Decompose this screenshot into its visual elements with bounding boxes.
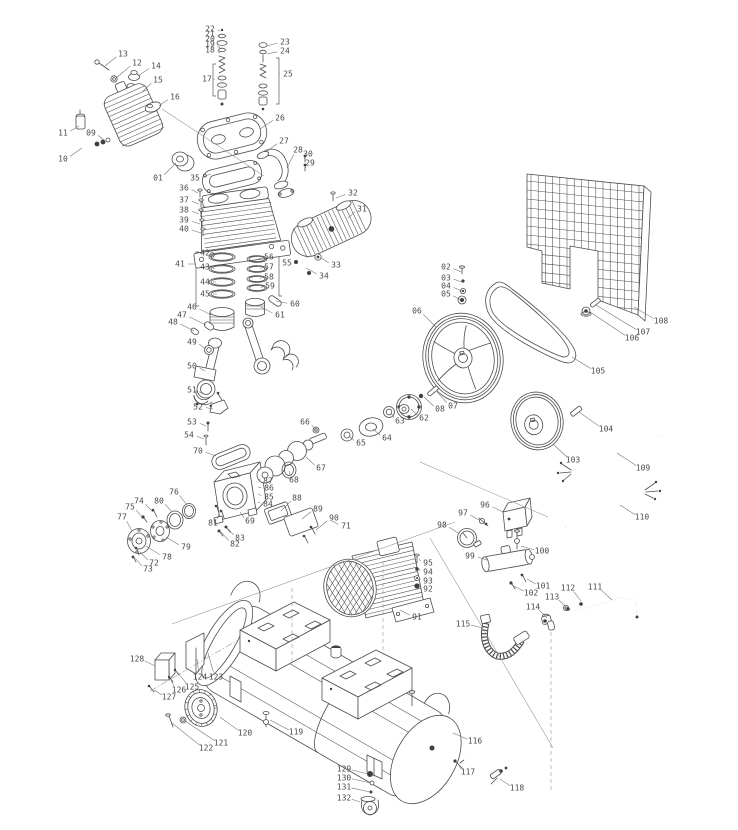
part-label-67: 67: [306, 457, 326, 473]
leader-line-16: [159, 99, 168, 106]
part-label-70: 70: [193, 447, 216, 456]
part-number-16: 16: [170, 93, 180, 102]
leader-line-23: [267, 43, 277, 46]
part-label-49: 49: [187, 338, 206, 349]
leader-line-104: [579, 412, 599, 426]
leader-line-80: [165, 504, 172, 512]
part-label-06: 06: [412, 307, 436, 327]
wrist-pins: [190, 295, 282, 336]
part-number-42: 42: [200, 249, 210, 258]
leader-line-32: [336, 194, 345, 198]
part-label-53: 53: [187, 418, 206, 427]
valve-stack-left: [217, 29, 227, 106]
part-number-79: 79: [181, 543, 191, 552]
part-number-125: 125: [185, 683, 200, 692]
part-label-79: 79: [166, 537, 191, 552]
part-label-96: 96: [480, 501, 503, 512]
leader-line-58: [260, 278, 261, 279]
part-number-97: 97: [458, 509, 468, 518]
part-label-08: 08: [424, 397, 445, 414]
part-number-40: 40: [179, 225, 189, 234]
part-label-28: 28: [287, 146, 303, 168]
part-number-64: 64: [382, 434, 392, 443]
leader-line-59: [261, 287, 262, 288]
discharge-pipe: [563, 598, 638, 619]
leader-line-67: [306, 457, 315, 465]
part-label-55: 55: [279, 259, 292, 268]
part-label-93: 93: [419, 577, 433, 586]
part-number-50: 50: [187, 362, 197, 371]
manifold: [479, 530, 534, 589]
part-number-43: 43: [200, 263, 210, 272]
part-number-113: 113: [545, 593, 560, 602]
part-number-47: 47: [177, 311, 187, 320]
part-number-89: 89: [313, 505, 323, 514]
part-label-50: 50: [187, 362, 205, 371]
part-number-22: 22: [205, 25, 215, 34]
part-label-112: 112: [561, 584, 581, 601]
part-label-48: 48: [168, 318, 194, 331]
part-number-96: 96: [480, 501, 490, 510]
part-number-121: 121: [214, 739, 229, 748]
part-number-28: 28: [293, 146, 303, 155]
part-number-26: 26: [275, 114, 285, 123]
part-number-27: 27: [279, 137, 289, 146]
leader-line-19: [217, 46, 220, 48]
part-number-74: 74: [134, 497, 144, 506]
part-number-41: 41: [175, 260, 185, 269]
motor-pulley: [506, 387, 569, 455]
part-number-15: 15: [153, 76, 163, 85]
connecting-rod-right: [243, 318, 298, 374]
leader-line-128: [144, 661, 155, 666]
part-label-36: 36: [179, 184, 198, 193]
leader-line-33: [321, 258, 329, 263]
exploded-view-diagram: 0102030405060708091011121314151617181920…: [0, 0, 738, 826]
part-label-81: 81: [208, 514, 219, 528]
leader-line-82: [221, 532, 229, 541]
part-number-17: 17: [202, 75, 212, 84]
leader-line-132: [352, 799, 360, 802]
part-label-120: 120: [220, 717, 252, 738]
part-label-13: 13: [105, 50, 128, 66]
part-label-05: 05: [441, 290, 461, 300]
leader-line-95: [419, 559, 421, 561]
part-label-99: 99: [465, 552, 487, 561]
leader-line-102: [514, 586, 524, 591]
part-label-77: 77: [117, 513, 132, 531]
pulley-key: [570, 406, 582, 417]
electric-motor: [308, 537, 434, 624]
leader-line-28: [287, 154, 294, 168]
part-number-55: 55: [282, 259, 292, 268]
part-number-46: 46: [187, 303, 197, 312]
part-number-129: 129: [337, 765, 352, 774]
braided-hose: [480, 614, 530, 656]
leader-line-122: [172, 723, 200, 745]
leader-line-48: [180, 324, 194, 331]
part-number-45: 45: [200, 290, 210, 299]
part-number-128: 128: [130, 655, 145, 664]
leader-line-43: [213, 268, 215, 269]
part-number-98: 98: [437, 521, 447, 530]
leader-line-103: [553, 444, 567, 457]
leader-line-14: [138, 68, 149, 76]
elbow-fitting: [541, 614, 555, 630]
part-label-118: 118: [500, 779, 524, 793]
grille-fasteners: [581, 298, 601, 316]
part-label-32: 32: [336, 189, 358, 198]
leader-line-106: [590, 312, 625, 335]
part-label-09: 09: [86, 129, 104, 140]
leader-line-94: [419, 569, 420, 570]
part-number-06: 06: [412, 307, 422, 316]
part-number-07: 07: [448, 402, 458, 411]
part-label-01: 01: [153, 163, 176, 183]
part-label-104: 104: [579, 412, 613, 434]
part-number-130: 130: [337, 774, 352, 783]
part-number-85: 85: [264, 493, 274, 502]
part-label-29: 29: [305, 159, 315, 168]
part-number-90: 90: [329, 514, 339, 523]
leader-line-72: [140, 552, 148, 560]
part-number-78: 78: [162, 553, 172, 562]
part-label-95: 95: [419, 559, 433, 568]
part-number-127: 127: [162, 693, 177, 702]
leader-line-105: [572, 357, 591, 369]
part-number-57: 57: [264, 263, 274, 272]
part-number-33: 33: [331, 261, 341, 270]
part-number-94: 94: [423, 568, 433, 577]
diagram-canvas: 0102030405060708091011121314151617181920…: [0, 0, 738, 826]
part-label-25: 25: [279, 70, 293, 79]
leader-line-83: [227, 528, 234, 535]
leader-line-113: [559, 600, 565, 606]
part-number-11: 11: [58, 129, 68, 138]
part-number-76: 76: [169, 488, 179, 497]
part-label-117: 117: [459, 766, 475, 777]
part-label-30: 30: [303, 150, 313, 159]
part-number-104: 104: [599, 425, 614, 434]
leader-line-01: [164, 163, 176, 175]
leader-line-79: [166, 537, 179, 545]
leader-line-96: [492, 507, 503, 512]
bracket-25: [276, 58, 279, 104]
part-number-36: 36: [179, 184, 189, 193]
part-number-95: 95: [423, 559, 433, 568]
part-number-70: 70: [193, 447, 203, 456]
part-label-41: 41: [175, 260, 196, 269]
part-number-123: 123: [209, 673, 224, 682]
part-label-37: 37: [179, 196, 199, 205]
part-number-80: 80: [154, 497, 164, 506]
part-number-108: 108: [654, 317, 669, 326]
part-number-88: 88: [292, 494, 302, 503]
part-number-13: 13: [118, 50, 128, 59]
part-number-02: 02: [441, 263, 451, 272]
part-label-40: 40: [179, 225, 201, 234]
leader-line-54: [197, 436, 204, 439]
part-label-39: 39: [179, 216, 200, 225]
part-number-23: 23: [280, 38, 290, 47]
part-number-68: 68: [289, 476, 299, 485]
part-number-59: 59: [265, 282, 275, 291]
part-number-132: 132: [337, 794, 352, 803]
part-number-107: 107: [636, 328, 651, 337]
leader-line-112: [574, 592, 581, 601]
part-number-48: 48: [168, 318, 178, 327]
part-label-128: 128: [130, 655, 155, 666]
part-number-58: 58: [264, 273, 274, 282]
valve-stack-right: [259, 43, 268, 111]
part-number-08: 08: [435, 405, 445, 414]
part-number-29: 29: [305, 159, 315, 168]
part-number-54: 54: [184, 431, 194, 440]
part-number-105: 105: [591, 367, 606, 376]
leader-line-37: [192, 201, 199, 204]
part-label-22: 22: [205, 25, 220, 34]
part-label-97: 97: [458, 509, 479, 520]
part-number-24: 24: [280, 47, 290, 56]
part-number-65: 65: [356, 439, 366, 448]
leader-line-40: [192, 230, 201, 233]
part-number-14: 14: [151, 62, 161, 71]
part-number-12: 12: [132, 59, 142, 68]
part-number-53: 53: [187, 418, 197, 427]
part-label-80: 80: [154, 497, 172, 512]
part-number-103: 103: [566, 456, 581, 465]
part-number-119: 119: [289, 728, 304, 737]
part-number-83: 83: [235, 534, 245, 543]
part-number-116: 116: [468, 737, 483, 746]
leader-line-03: [454, 279, 462, 282]
part-number-99: 99: [465, 552, 475, 561]
part-number-30: 30: [303, 150, 313, 159]
leader-line-57: [260, 268, 261, 269]
leader-line-06: [423, 314, 436, 327]
part-label-11: 11: [58, 126, 79, 138]
part-number-81: 81: [208, 519, 218, 528]
leader-line-24: [267, 52, 277, 54]
leader-line-27: [266, 144, 277, 152]
part-label-102: 102: [514, 586, 538, 598]
leader-line-111: [601, 590, 612, 600]
part-number-122: 122: [199, 744, 214, 753]
leader-line-47: [189, 317, 206, 325]
leader-line-110: [620, 505, 635, 515]
part-number-117: 117: [461, 768, 476, 777]
leader-line-09: [98, 135, 104, 140]
part-label-103: 103: [553, 444, 580, 465]
part-number-112: 112: [561, 584, 576, 593]
part-number-115: 115: [456, 620, 471, 629]
part-label-90: 90: [316, 514, 339, 530]
leader-line-08: [424, 397, 434, 406]
gauge-reducer: [479, 518, 488, 526]
part-number-93: 93: [423, 577, 433, 586]
leader-line-02: [454, 269, 461, 272]
tank-bracket: [186, 633, 204, 674]
part-number-73: 73: [143, 565, 153, 574]
part-number-35: 35: [190, 174, 200, 183]
part-label-24: 24: [267, 47, 290, 56]
part-label-115: 115: [456, 620, 483, 629]
leader-line-78: [146, 546, 160, 555]
leader-line-49: [199, 344, 206, 349]
part-number-52: 52: [193, 403, 203, 412]
part-label-131: 131: [337, 783, 370, 792]
part-label-132: 132: [337, 794, 360, 803]
part-number-05: 05: [441, 290, 451, 299]
leader-line-53: [200, 423, 206, 426]
part-label-10: 10: [58, 148, 82, 164]
leader-line-36: [192, 190, 198, 193]
part-number-114: 114: [526, 603, 541, 612]
part-label-74: 74: [134, 497, 153, 512]
part-number-118: 118: [510, 784, 525, 793]
part-number-100: 100: [535, 547, 550, 556]
part-number-120: 120: [238, 729, 253, 738]
leader-line-98: [449, 527, 458, 533]
part-number-66: 66: [300, 418, 310, 427]
part-label-16: 16: [159, 93, 180, 106]
part-label-68: 68: [289, 471, 299, 485]
leader-line-101: [527, 579, 536, 584]
part-number-69: 69: [245, 517, 255, 526]
part-number-31: 31: [357, 205, 367, 214]
part-label-111: 111: [588, 583, 612, 600]
part-number-63: 63: [395, 417, 405, 426]
part-label-98: 98: [437, 521, 458, 533]
leader-line-46: [199, 309, 211, 315]
part-number-77: 77: [117, 513, 127, 522]
part-number-110: 110: [635, 513, 650, 522]
part-label-33: 33: [321, 258, 341, 270]
part-label-66: 66: [300, 418, 315, 429]
leader-line-127: [154, 690, 162, 695]
part-number-71: 71: [341, 522, 351, 531]
leader-line-38: [192, 211, 199, 214]
bracket-17: [213, 64, 216, 96]
part-label-27: 27: [266, 137, 289, 152]
part-number-131: 131: [337, 783, 352, 792]
part-label-122: 122: [172, 723, 213, 753]
part-number-34: 34: [319, 272, 329, 281]
part-number-61: 61: [275, 311, 285, 320]
part-number-10: 10: [58, 155, 68, 164]
part-number-49: 49: [187, 338, 197, 347]
leader-line-10: [70, 148, 82, 156]
part-number-51: 51: [187, 386, 197, 395]
leader-line-13: [105, 57, 116, 66]
leader-line-74: [145, 504, 153, 512]
pressure-gauge: [458, 529, 482, 548]
part-label-54: 54: [184, 431, 204, 440]
page: { "meta": { "figure_type": "exploded-par…: [0, 0, 738, 826]
part-number-75: 75: [125, 503, 135, 512]
part-number-37: 37: [179, 196, 189, 205]
part-label-76: 76: [169, 488, 187, 505]
leader-line-77: [127, 521, 132, 531]
part-label-23: 23: [267, 38, 290, 47]
part-label-47: 47: [177, 311, 206, 325]
part-number-111: 111: [588, 583, 603, 592]
part-number-44: 44: [200, 278, 210, 287]
leader-line-109: [617, 453, 636, 466]
leader-line-120: [220, 717, 238, 730]
part-label-110: 110: [620, 505, 649, 522]
leader-line-76: [180, 496, 187, 505]
part-number-39: 39: [179, 216, 189, 225]
part-label-02: 02: [441, 263, 461, 272]
leader-line-22: [218, 30, 220, 31]
leader-line-39: [192, 221, 200, 224]
part-number-56: 56: [264, 253, 274, 262]
leader-line-70: [206, 452, 216, 456]
part-number-87: 87: [263, 477, 273, 486]
part-number-01: 01: [153, 174, 163, 183]
part-number-25: 25: [283, 70, 293, 79]
part-number-124: 124: [193, 673, 208, 682]
part-number-92: 92: [423, 585, 433, 594]
part-label-109: 109: [617, 453, 650, 473]
part-label-94: 94: [419, 568, 433, 577]
leader-line-131: [352, 788, 370, 792]
part-number-38: 38: [179, 206, 189, 215]
part-number-32: 32: [348, 189, 358, 198]
part-number-67: 67: [316, 464, 326, 473]
leader-line-97: [470, 515, 479, 520]
part-label-38: 38: [179, 206, 199, 215]
leader-line-118: [500, 779, 510, 786]
part-number-62: 62: [419, 414, 429, 423]
part-label-105: 105: [572, 357, 605, 376]
part-label-127: 127: [154, 690, 176, 702]
flywheel-fasteners: [458, 266, 466, 304]
check-valve: [490, 767, 508, 784]
part-label-113: 113: [545, 593, 565, 606]
part-label-46: 46: [187, 303, 211, 315]
oil-seal: [172, 152, 194, 171]
belt-guard-grille: [527, 174, 651, 331]
leader-line-75: [136, 510, 142, 517]
part-number-91: 91: [412, 613, 422, 622]
part-number-109: 109: [636, 464, 651, 473]
part-number-60: 60: [290, 300, 300, 309]
part-number-09: 09: [86, 129, 96, 138]
part-number-102: 102: [524, 589, 539, 598]
